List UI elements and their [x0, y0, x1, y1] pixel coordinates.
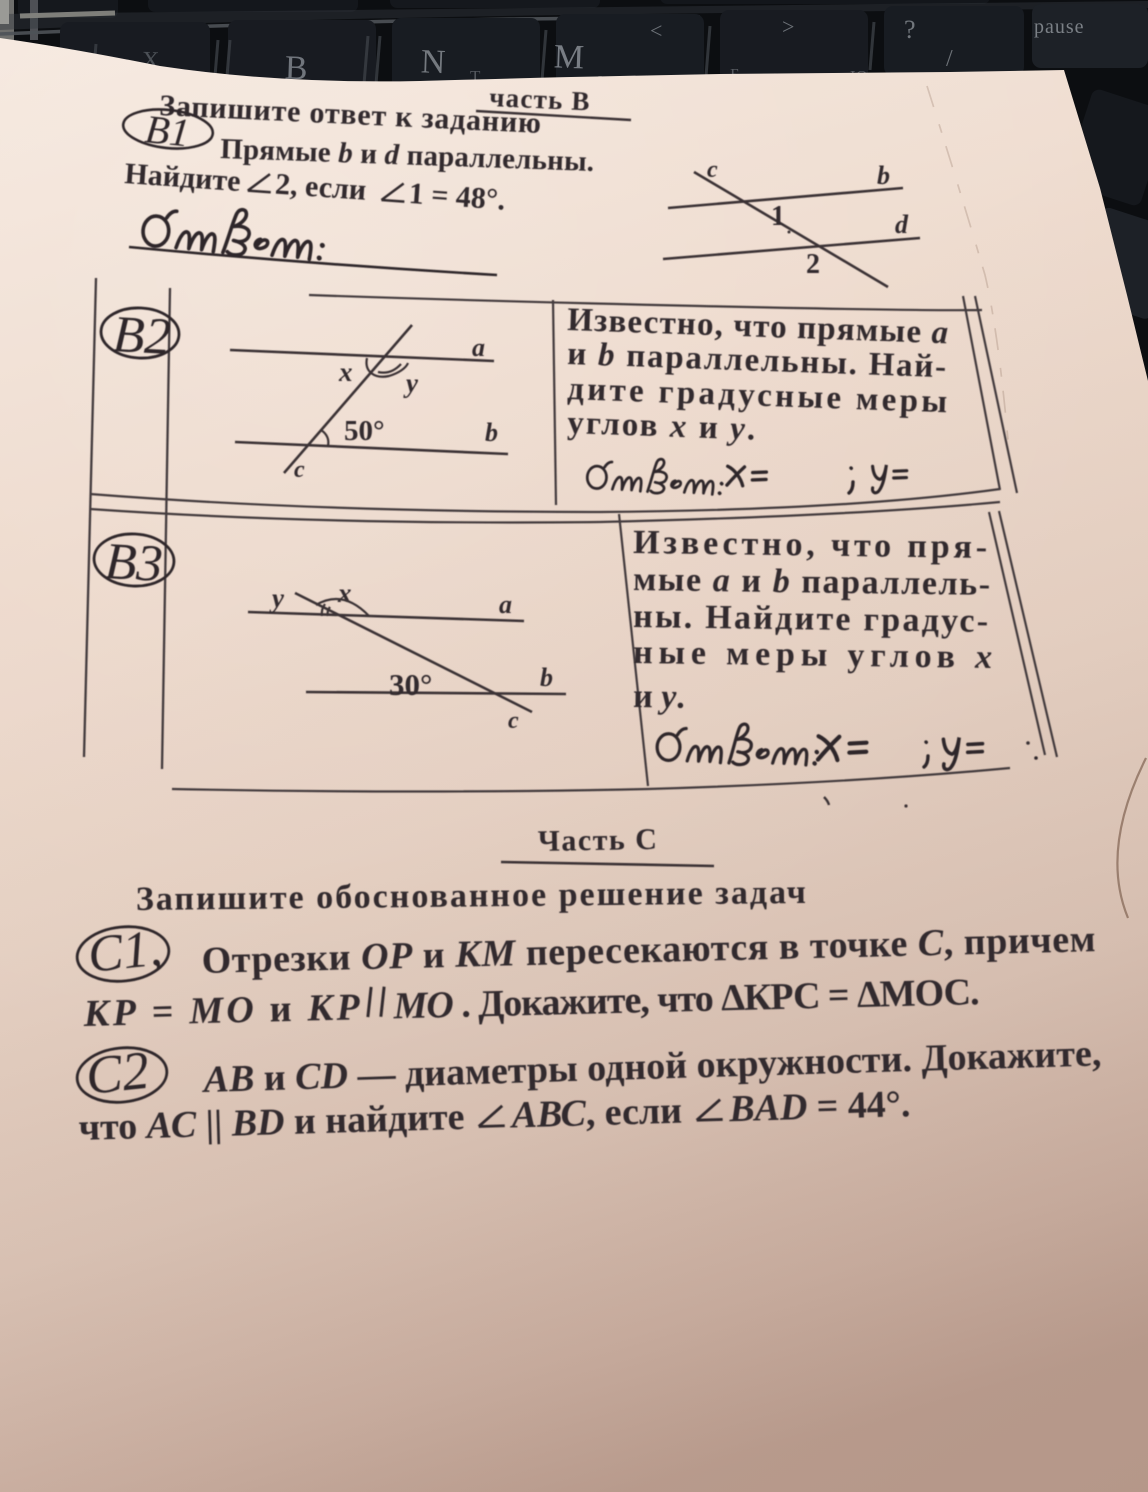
- svg-text:<: <: [650, 18, 662, 43]
- svg-text:a: a: [499, 590, 512, 619]
- svg-text:b: b: [540, 663, 553, 692]
- svg-text:углов x и y.: углов x и y.: [567, 405, 756, 448]
- svg-text:мые a и b параллель-: мые a и b параллель-: [633, 561, 990, 603]
- svg-text:c: c: [707, 157, 718, 183]
- svg-text:1: 1: [771, 201, 785, 232]
- svg-text:С1,: С1,: [85, 920, 164, 984]
- svg-text:x: x: [338, 357, 353, 387]
- svg-text:ны. Найдите градус-: ны. Найдите градус-: [633, 598, 988, 640]
- svg-text:N: N: [420, 43, 446, 81]
- svg-text:С2: С2: [83, 1040, 152, 1106]
- svg-text:M: M: [553, 38, 585, 76]
- svg-text:Часть С: Часть С: [538, 823, 659, 858]
- svg-text:a: a: [472, 333, 485, 362]
- svg-text:x: x: [337, 578, 352, 608]
- svg-text:pause: pause: [1034, 16, 1085, 38]
- svg-text:и y.: и y.: [633, 678, 685, 716]
- svg-text:Запишите обоснованное решение: Запишите обоснованное решение задач: [136, 874, 806, 918]
- svg-text:b: b: [485, 418, 498, 447]
- svg-text:2: 2: [806, 249, 820, 280]
- svg-text:50°: 50°: [344, 415, 385, 447]
- svg-text:2, если: 2, если: [274, 168, 367, 207]
- svg-text:c: c: [294, 457, 305, 483]
- svg-text:?: ?: [904, 15, 916, 44]
- svg-text:Известно, что пря-: Известно, что пря-: [633, 524, 987, 566]
- svg-text:c: c: [508, 708, 519, 734]
- svg-text:1 = 48°.: 1 = 48°.: [408, 177, 507, 217]
- svg-text:/: /: [946, 46, 953, 72]
- svg-text:В2: В2: [111, 306, 172, 366]
- svg-text:d: d: [895, 210, 909, 239]
- svg-text:b: b: [877, 161, 890, 190]
- svg-text:В3: В3: [103, 533, 164, 593]
- svg-text:>: >: [782, 14, 794, 39]
- svg-text:y: y: [403, 368, 419, 398]
- svg-text:В1: В1: [143, 106, 192, 155]
- svg-text:30°: 30°: [389, 667, 432, 702]
- svg-text:y: y: [269, 583, 285, 613]
- svg-text:КР = МО и КР: КР = МО и КР: [82, 986, 361, 1035]
